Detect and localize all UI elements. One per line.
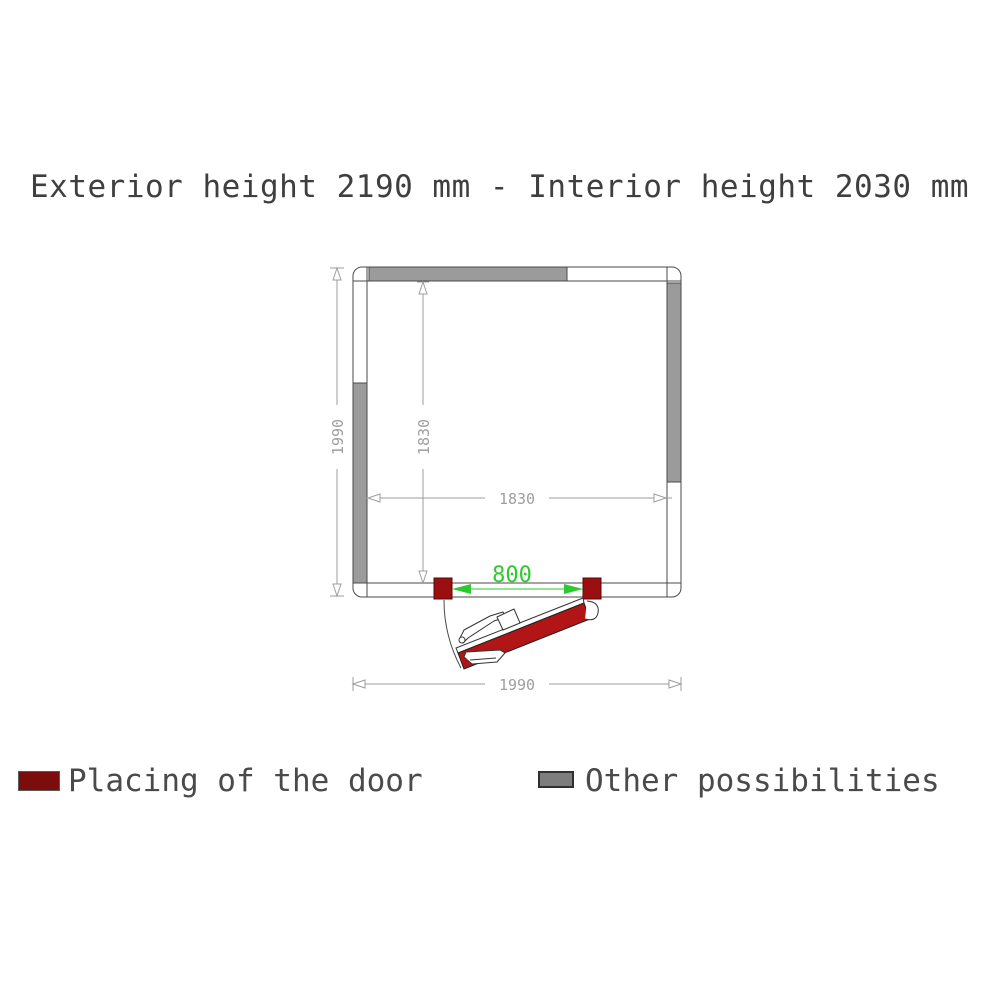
drawing-canvas: Exterior height 2190 mm - Interior heigh… [0,0,1000,1000]
dim-exterior-horizontal-label: 1990 [499,676,535,694]
dim-interior-vertical-labelbox: 1830 [414,405,433,469]
door [444,598,598,669]
legend-door-label: Placing of the door [68,766,423,797]
dim-exterior-vertical-labelbox: 1990 [328,405,347,469]
door-jamb-right [583,578,601,599]
door-handle-hook [459,637,465,643]
other-possibility-segment-right [667,283,681,482]
dim-exterior-horizontal-labelbox: 1990 [485,675,549,694]
door-swing-arc [444,600,461,668]
legend-other-label: Other possibilities [585,766,940,797]
dim-interior-horizontal-label: 1830 [499,490,535,508]
dim-interior-horizontal-labelbox: 1830 [485,489,549,508]
other-possibility-segment-left [353,383,367,583]
door-hinge [585,601,598,620]
room-interior [367,281,667,583]
other-possibility-segment-top [369,267,567,281]
door-handle-outer [464,650,505,664]
door-jamb-left [434,578,452,599]
legend-door-swatch [18,771,60,791]
floor-plan-svg: 1990 1830 1830 [0,0,1000,1000]
dim-door-opening-label: 800 [492,563,532,588]
legend-other-swatch [538,771,574,788]
dim-exterior-vertical-label: 1990 [329,419,347,455]
dim-interior-vertical-label: 1830 [415,419,433,455]
floor-plan-walls [353,267,681,599]
